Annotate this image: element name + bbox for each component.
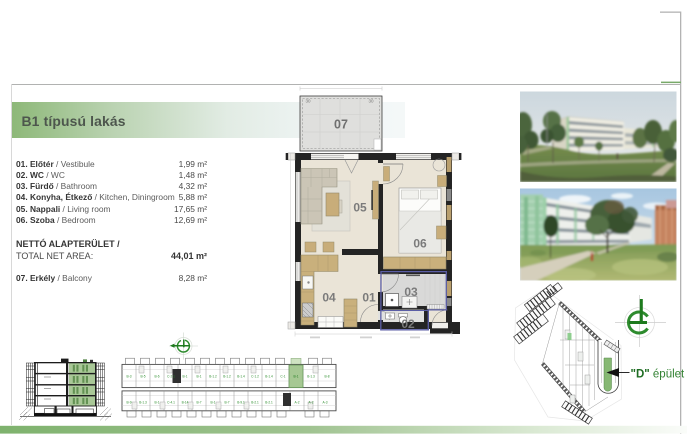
svg-text:30: 30	[368, 99, 374, 104]
svg-text:A-3: A-3	[323, 401, 328, 405]
svg-text:B-14: B-14	[182, 401, 189, 405]
svg-text:05: 05	[353, 201, 367, 215]
svg-text:C-4.1: C-4.1	[167, 401, 175, 405]
svg-text:A-2: A-2	[295, 401, 300, 405]
svg-text:02: 02	[401, 317, 415, 331]
svg-text:B-1.2: B-1.2	[223, 375, 231, 379]
svg-text:B-5: B-5	[141, 375, 146, 379]
svg-text:B-1.3: B-1.3	[307, 375, 315, 379]
svg-text:04: 04	[322, 291, 336, 305]
svg-text:B-9.1: B-9.1	[237, 401, 245, 405]
svg-text:B-7: B-7	[225, 401, 230, 405]
svg-text:07: 07	[334, 118, 348, 132]
svg-text:B-1: B-1	[197, 375, 202, 379]
svg-text:B-8: B-8	[325, 375, 330, 379]
svg-text:B-7: B-7	[197, 401, 202, 405]
svg-text:B-6: B-6	[155, 375, 160, 379]
svg-text:06: 06	[413, 237, 427, 251]
svg-text:B-1: B-1	[294, 375, 299, 379]
svg-text:B-1.3: B-1.3	[139, 401, 147, 405]
svg-text:C-1: C-1	[280, 375, 285, 379]
svg-text:B-3: B-3	[127, 375, 132, 379]
svg-text:01: 01	[362, 291, 376, 305]
svg-text:B-1: B-1	[155, 401, 160, 405]
svg-text:B-1: B-1	[183, 375, 188, 379]
svg-text:B-2.1: B-2.1	[265, 401, 273, 405]
svg-text:B-1.4: B-1.4	[237, 375, 245, 379]
svg-text:B-1.2: B-1.2	[209, 375, 217, 379]
svg-text:03: 03	[404, 285, 418, 299]
svg-text:A-2: A-2	[309, 401, 314, 405]
svg-text:30: 30	[305, 99, 311, 104]
svg-text:"D" épület: "D" épület	[631, 369, 686, 381]
svg-text:B-9: B-9	[127, 401, 132, 405]
svg-text:C-1.2: C-1.2	[251, 375, 259, 379]
svg-text:B-1: B-1	[211, 401, 216, 405]
svg-text:B-1.4: B-1.4	[265, 375, 273, 379]
svg-text:B-2.1: B-2.1	[251, 401, 259, 405]
svg-text:C-2.1: C-2.1	[167, 375, 175, 379]
